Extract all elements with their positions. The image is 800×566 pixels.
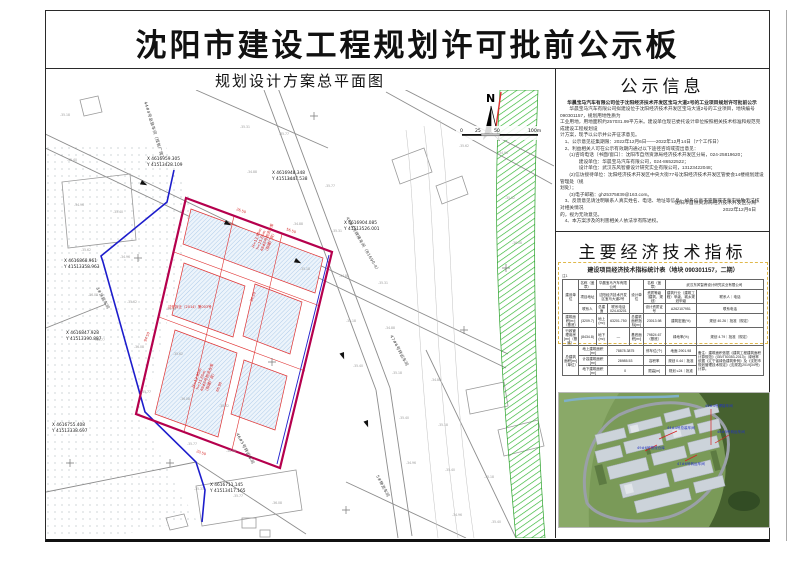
elevation-label: -34.96	[74, 203, 84, 207]
panel-divider	[555, 68, 556, 538]
elevation-label: -35.77	[279, 132, 289, 136]
indicator-cell: 项目地址	[579, 290, 596, 304]
scale-tick: 100m	[528, 128, 542, 134]
notice-panel-title: 公示信息	[555, 72, 770, 97]
elevation-label: -34.88	[385, 326, 395, 330]
elevation-label: -34.96	[498, 151, 508, 155]
elevation-label: -35.31	[194, 487, 204, 491]
indicator-cell: 地面 2901.98	[665, 346, 696, 356]
indicator-row: 建设单位名称（盖章）华晨宝马汽车有限公司设计单位名称（盖章）武汉东风智睿设计研究…	[563, 280, 764, 290]
notice-heading: 华晨宝马汽车有限公司位于沈阳经济技术开发区宝马大道2号的工业项目规划许可批前公示	[560, 99, 764, 106]
render-annotation-label: 47#6号转运车间	[677, 461, 705, 466]
elevation-label: -35.40	[399, 416, 409, 420]
indicator-cell: 总建筑面积[m²]（单位）	[563, 346, 579, 376]
indicator-cell: 地上(m²)	[596, 314, 607, 328]
coord-y: Y 41513447.538	[271, 176, 308, 182]
dim-label: 56.50	[286, 227, 297, 234]
notice-line: 划处）；	[560, 185, 764, 192]
site-plan-map: -35.18-35.40-34.96-35.62-36.08-35.77-35.…	[46, 90, 554, 538]
indicators-title: 主要经济技术指标	[555, 238, 770, 263]
indicator-cell: (3209.7)	[579, 314, 596, 328]
road-label: 46#5号转运车间	[235, 432, 256, 465]
indicator-cell: 23013.98	[643, 314, 665, 328]
indicator-cell: 联系人	[579, 304, 596, 314]
aerial-render-image: 46#4号焊接车间44#4号总装车间49#6号物流仓库47#6号转运车间46#5…	[558, 392, 770, 528]
indicator-cell: 停车位(个)	[643, 346, 665, 356]
elevation-label: -34.88	[339, 274, 349, 278]
indicator-row: 项目地址沈阳经济技术开发区宝马大道2号资质等级（建筑、规划）建筑行业（建筑工程）…	[563, 290, 764, 304]
indicator-cell: 容积率	[643, 356, 665, 366]
indicator-cell: 规划 40.26｜批准（规定）	[697, 314, 764, 328]
render-annotation-label: 46#4号焊接车间	[705, 403, 733, 408]
indicator-cell: 资质等级（建筑、规划）	[643, 290, 665, 304]
sheet-outer-edge	[786, 10, 787, 541]
demolition-note: 沈开拆迁（2014）第003号	[168, 304, 212, 309]
indicator-cell: 地下建筑面积[m²]	[579, 366, 607, 376]
elevation-label: -35.62	[219, 404, 229, 408]
elevation-label: -35.40	[67, 158, 77, 162]
elevation-label: -34.96	[120, 255, 130, 259]
elevation-label: -35.18	[438, 423, 448, 427]
render-annotation-label: 49#6号物流仓库	[637, 445, 665, 450]
elevation-label: -35.62	[505, 196, 515, 200]
elevation-label: -36.08	[512, 241, 522, 245]
elevation-label: -35.31	[240, 125, 250, 129]
elevation-label: -35.62	[81, 248, 91, 252]
indicator-cell: 建设单位	[563, 280, 579, 314]
scale-bar: 0 25 50 100m	[456, 126, 544, 140]
elevation-label: -35.18	[300, 267, 310, 271]
indicator-cell: 0	[607, 366, 643, 376]
elevation-label: -35.31	[378, 281, 388, 285]
elevation-label: -35.31	[332, 229, 342, 233]
plan-panel-title: 规划设计方案总平面图	[45, 70, 555, 91]
indicator-cell: 设计资质证号	[643, 304, 665, 314]
indicator-cell: 绿地率(%)	[665, 328, 696, 346]
indicator-cell: 63201.750	[607, 314, 630, 328]
scale-tick: 0	[460, 128, 463, 134]
indicator-cell: 地上建筑面积[m²]	[579, 346, 607, 356]
elevation-label: -34.96	[452, 513, 462, 517]
coord-y: Y 41513338.697	[51, 428, 88, 434]
scale-tick: 50	[494, 128, 500, 134]
elevation-label: -35.18	[392, 371, 402, 375]
indicator-cell: 联系电话	[697, 304, 764, 314]
coord-x: X 4616847.928	[66, 330, 99, 336]
indicator-cell: 华晨宝马汽车有限公司	[596, 280, 630, 290]
indicator-cell: 建筑行业（建筑工程）甲级、城乡规划甲级	[665, 290, 696, 304]
indicator-cell: 行政管理用房[m²]（基底）	[563, 328, 579, 346]
elevation-label: -35.40	[491, 520, 501, 524]
elevation-label: -36.08	[88, 293, 98, 297]
indicator-cell: 建筑密度(%)	[665, 314, 696, 328]
coord-x: X 4616868.961	[64, 258, 97, 264]
north-label: N	[486, 92, 495, 105]
elevation-label: -35.77	[141, 390, 151, 394]
dim-label: 20.50	[196, 449, 207, 456]
section-divider	[555, 231, 770, 232]
elevation-label: -35.18	[60, 113, 70, 117]
elevation-label: -36.08	[272, 501, 282, 505]
indicator-cell: (8434.8)	[579, 328, 596, 346]
indicator-cell: 限高[m]	[643, 366, 665, 376]
coord-x: X 4616711.145	[210, 482, 243, 488]
indicator-cell: —	[607, 328, 630, 346]
indicator-cell: 78878.3875	[607, 346, 643, 356]
indicators-caption: 建设项目经济技术指标统计表（地块 090301157，二期）	[559, 265, 767, 274]
indicator-cell: 规划 ≤24｜批准	[665, 366, 696, 376]
indicator-row: 总建筑面积[m²]（单位）地上建筑面积[m²]78878.3875停车位(个)地…	[563, 346, 764, 356]
indicator-row: 建筑面积[m²]（基底）(3209.7)地上(m²)63201.750总建筑面积…	[563, 314, 764, 328]
elevation-label: -34.88	[293, 222, 303, 226]
coord-y: Y 41513428.109	[146, 162, 183, 168]
elevation-label: -35.40	[113, 210, 123, 214]
indicator-cell: 计容建筑面积[m²]	[579, 356, 607, 366]
indicator-cell: 名称（盖章）	[643, 280, 665, 290]
signature-org: 沈阳市自然资源局经济技术开发区分局	[560, 200, 756, 207]
page-title: 沈阳市建设工程规划许可批前公示板	[45, 20, 770, 65]
notice-line: 4、本方案涉及的利害相关人依法享有陈述权。	[560, 218, 764, 225]
coord-x: X 4616755.408	[52, 422, 85, 428]
indicator-cell: 规划 4.79｜批准（规定）	[697, 328, 764, 346]
indicator-cell: 基底面积[m²]	[630, 328, 644, 346]
elevation-label: -34.96	[406, 461, 416, 465]
elevation-label: -35.77	[325, 184, 335, 188]
indicator-cell: 沈阳经济技术开发区宝马大道2号	[596, 290, 630, 304]
elevation-label: -35.40	[445, 468, 455, 472]
indicator-cell: 名称（盖章）	[579, 280, 596, 290]
elevation-label: -36.08	[180, 397, 190, 401]
indicators-block: 建设项目经济技术指标统计表（地块 090301157，二期） 注1 建设单位名称…	[558, 262, 768, 344]
elevation-label: -36.08	[226, 449, 236, 453]
indicator-cell: 79824.67（基底）	[643, 328, 665, 346]
elevation-label: -34.88	[247, 170, 257, 174]
indicator-cell: 联系人｜电话	[697, 290, 764, 304]
indicator-cell: 备注：建筑面积依据《建筑工程建筑面积计算规范》(GB/T50353-2013)；…	[697, 346, 764, 376]
notice-line: 工业用地，用地面积约257031.99平方米。建设单位现已委托设计单位按照相关技…	[560, 119, 764, 132]
indicators-table: 建设单位名称（盖章）华晨宝马汽车有限公司设计单位名称（盖章）武汉东风智睿设计研究…	[562, 279, 764, 376]
indicator-row: 行政管理用房[m²]（基底）(8434.8)地下(m²)—基底面积[m²]798…	[563, 328, 764, 346]
coord-y: Y 41513358.963	[63, 264, 100, 270]
indicator-cell: 地下(m²)	[596, 328, 607, 346]
elevation-label: -35.40	[353, 364, 363, 368]
road-label: 47#6号转运车间	[389, 334, 410, 367]
indicator-cell: 规划 0.44｜批准	[665, 356, 696, 366]
render-annotation-label: 46#5号转运车间	[717, 429, 745, 434]
elevation-label: -35.62	[173, 352, 183, 356]
render-annotation-label: 44#4号总装车间	[667, 425, 695, 430]
title-divider	[45, 68, 770, 69]
indicator-cell: 联系电话 024-63201	[607, 304, 630, 314]
coord-x: X 4616948.348	[272, 170, 305, 176]
elevation-label: -36.08	[134, 345, 144, 349]
notice-line: 计方案，现予以公示并公开征求意见。	[560, 132, 764, 139]
elevation-label: -35.62	[459, 144, 469, 148]
notice-line: 1、公示意见征集期限：2022年12月6日——2022年12月14日（7个工作日…	[560, 139, 764, 146]
indicator-cell: 设计单位	[630, 280, 644, 314]
dim-label: 26.50	[236, 207, 247, 214]
coord-y: Y 41513390.887	[65, 336, 102, 342]
elevation-label: -34.88	[431, 378, 441, 382]
indicator-cell: 武汉东风智睿设计研究实业有限公司	[665, 280, 763, 290]
elevation-label: -35.77	[233, 494, 243, 498]
coord-y: Y 41513417.165	[209, 488, 246, 494]
scale-tick: 25	[475, 128, 481, 134]
indicator-row: 联系人总建面联系电话 024-63201设计资质证号A262107951联系电话	[563, 304, 764, 314]
elevation-label: -35.18	[346, 319, 356, 323]
notice-line: (2)信访接待单位：沈阳经济技术开发区中央大街77号沈阳经济技术开发区管委会14…	[560, 172, 764, 185]
notice-signature: 沈阳市自然资源局经济技术开发区分局 2022年12月6日	[560, 200, 756, 214]
indicator-cell: 总建面	[596, 304, 607, 314]
elevation-label: -35.62	[127, 300, 137, 304]
notice-line: 设计单位：武汉东风智睿设计研究实业有限公司，13123422048；	[560, 165, 764, 172]
elevation-label: -35.77	[187, 442, 197, 446]
indicator-cell: 28985.53	[607, 356, 643, 366]
elevation-label: -35.18	[484, 475, 494, 479]
notice-line: 华晨宝马汽车有限公司拟建设位于沈阳经济技术开发区宝马大道2号的工业项目，地块编号…	[560, 106, 764, 119]
indicator-cell: 建筑面积[m²]（基底）	[563, 314, 579, 328]
indicator-cell: A262107951	[665, 304, 696, 314]
coord-y: Y 41513526.001	[343, 226, 380, 232]
signature-date: 2022年12月6日	[560, 207, 756, 214]
notice-line: (1)咨询电话（书面/窗口）：沈阳市自然资源局经济技术开发区分局，024-258…	[560, 152, 764, 159]
indicator-cell: 总建筑面积指标[m²]	[630, 314, 644, 328]
